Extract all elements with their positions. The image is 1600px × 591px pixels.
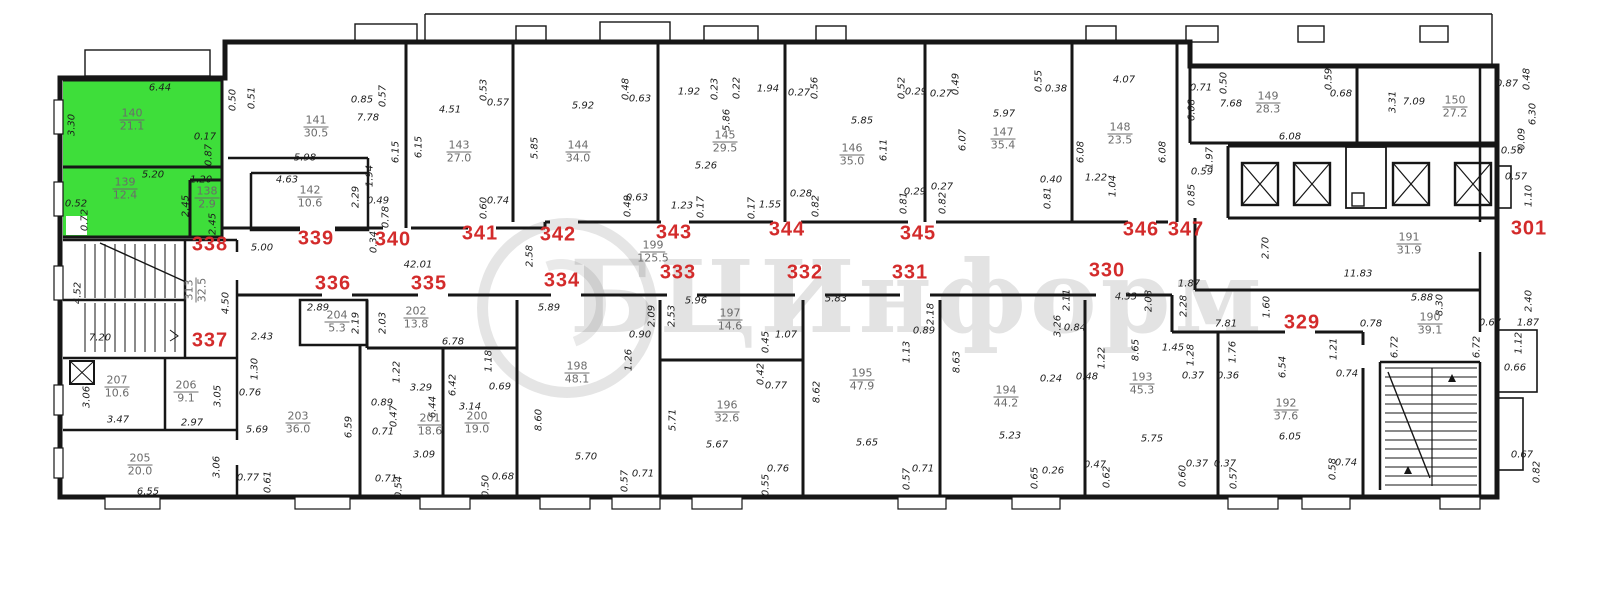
unit-number-329[interactable]: 329	[1284, 312, 1320, 335]
dimension-label: 0.61	[263, 471, 274, 493]
dimension-label: 0.22	[732, 77, 743, 99]
room-area: 48.1	[565, 374, 590, 386]
dimension-label: 2.70	[1261, 237, 1272, 259]
room-area: 5.3	[328, 323, 346, 335]
dimension-label: 1.60	[1262, 296, 1273, 318]
dimension-label: 0.85	[351, 95, 373, 106]
room-label-146: 14635.0	[840, 143, 865, 168]
room-area: 29.5	[713, 143, 738, 155]
dimension-label: 6.44	[149, 83, 171, 94]
dimension-label: 3.47	[107, 415, 129, 426]
dimension-label: 7.09	[1403, 97, 1425, 108]
room-area: 14.6	[718, 321, 743, 333]
dimension-label: 2.53	[667, 305, 678, 327]
unit-number-342[interactable]: 342	[540, 224, 576, 247]
unit-number-333[interactable]: 333	[660, 262, 696, 285]
room-label-202: 20213.8	[404, 306, 429, 331]
dimension-label: 0.62	[1102, 466, 1113, 488]
room-area: 45.3	[1130, 385, 1155, 397]
dimension-label: 7.78	[357, 113, 379, 124]
dimension-label: 0.78	[1360, 319, 1382, 330]
room-label-150: 15027.2	[1443, 95, 1468, 120]
dimension-label: 6.15	[414, 136, 425, 158]
dimension-label: 0.59	[1324, 68, 1335, 90]
dimension-label: 1.22	[392, 361, 403, 383]
dimension-label: 0.71	[912, 464, 934, 475]
dimension-label: 5.00	[251, 243, 273, 254]
unit-number-346[interactable]: 346	[1123, 219, 1159, 242]
room-label-201: 20118.6	[418, 413, 443, 438]
dimension-label: 5.65	[856, 438, 878, 449]
dimension-label: 6.07	[958, 129, 969, 151]
dimension-label: 1.87	[1517, 318, 1539, 329]
room-label-197: 19714.6	[718, 308, 743, 333]
room-area: 19.0	[465, 424, 490, 436]
room-label-206: 2069.1	[174, 380, 199, 405]
dimension-label: 0.65	[1030, 467, 1041, 489]
dimension-label: 7.81	[1215, 319, 1237, 330]
room-area: 27.0	[447, 153, 472, 165]
dimension-label: 3.09	[413, 450, 435, 461]
dimension-label: 6.78	[442, 337, 464, 348]
room-area: 2.9	[198, 199, 216, 211]
dimension-label: 0.90	[629, 330, 651, 341]
dimension-label: 3.31	[1388, 91, 1399, 113]
dimension-label: 8.62	[812, 381, 823, 403]
dimension-label: 1.45	[1162, 343, 1184, 354]
room-label-198: 19848.1	[565, 361, 590, 386]
dimension-label: 0.40	[1040, 175, 1062, 186]
dimension-label: 2.03	[378, 312, 389, 334]
unit-number-337[interactable]: 337	[192, 330, 228, 353]
dimension-label: 0.82	[1532, 461, 1543, 483]
room-label-191: 19131.9	[1397, 232, 1422, 257]
room-label-204: 2045.3	[325, 310, 350, 335]
dimension-label: 0.82	[811, 195, 822, 217]
room-area: 10.6	[105, 388, 130, 400]
room-area: 47.9	[850, 381, 875, 393]
dimension-label: 0.58	[1328, 458, 1339, 480]
dimension-label: 6.08	[1076, 141, 1087, 163]
dimension-label: 0.55	[761, 474, 772, 496]
dimension-label: 5.85	[530, 137, 541, 159]
dimension-label: 0.67	[1479, 318, 1501, 329]
room-label-145: 14529.5	[713, 130, 738, 155]
dimension-label: 0.77	[765, 381, 787, 392]
dimension-label: 0.38	[1045, 84, 1067, 95]
unit-number-301[interactable]: 301	[1511, 218, 1547, 241]
dimension-label: 2.18	[926, 303, 937, 325]
dimension-label: 3.05	[213, 385, 224, 407]
room-label-142: 14210.6	[298, 185, 323, 210]
dimension-label: 6.05	[1279, 432, 1301, 443]
dimension-label: 0.87	[1496, 79, 1518, 90]
room-area: 39.1	[1418, 325, 1443, 337]
dimension-label: 0.57	[620, 470, 631, 492]
dimension-label: 11.83	[1344, 269, 1373, 280]
dimension-label: 1.92	[678, 87, 700, 98]
unit-number-338[interactable]: 338	[192, 234, 228, 257]
dimension-label: 1.26	[624, 349, 635, 371]
unit-number-344[interactable]: 344	[769, 219, 805, 242]
unit-number-343[interactable]: 343	[656, 222, 692, 245]
dimension-label: 0.63	[629, 94, 651, 105]
dimension-label: 2.97	[181, 418, 203, 429]
dimension-label: 6.08	[1279, 132, 1301, 143]
dimension-label: 0.56	[1501, 146, 1523, 157]
labels-layer: 6.443.300.170.875.201.202.452.450.520.72…	[0, 0, 1600, 591]
dimension-label: 5.75	[1141, 434, 1163, 445]
dimension-label: 0.50	[228, 89, 239, 111]
dimension-label: 2.58	[525, 245, 536, 267]
dimension-label: 6.08	[1158, 141, 1169, 163]
dimension-label: 3.06	[82, 386, 93, 408]
dimension-label: 5.71	[668, 409, 679, 431]
dimension-label: 0.23	[710, 78, 721, 100]
room-area: 44.2	[994, 398, 1019, 410]
dimension-label: 0.69	[489, 382, 511, 393]
dimension-label: 0.50	[1219, 72, 1230, 94]
dimension-label: 0.71	[632, 469, 654, 480]
dimension-label: 3.30	[67, 114, 78, 136]
dimension-label: 0.55	[1034, 70, 1045, 92]
room-area: 37.6	[1274, 411, 1299, 423]
dimension-label: 1.07	[775, 330, 797, 341]
dimension-label: 0.37	[1182, 371, 1204, 382]
dimension-label: 0.29	[905, 87, 927, 98]
dimension-label: 0.56	[810, 77, 821, 99]
dimension-label: 6.42	[448, 374, 459, 396]
dimension-label: 6.54	[1278, 356, 1289, 378]
unit-number-339[interactable]: 339	[298, 228, 334, 251]
floor-plan: БЦИнформ 6.443.300.170.875.201.202.452.4…	[0, 0, 1600, 591]
unit-number-341[interactable]: 341	[462, 223, 498, 246]
dimension-label: 6.72	[1390, 336, 1401, 358]
dimension-label: 0.48	[1076, 372, 1098, 383]
dimension-label: 0.37	[1186, 459, 1208, 470]
room-label-193: 19345.3	[1130, 372, 1155, 397]
dimension-label: 1.13	[902, 341, 913, 363]
room-label-190: 19039.1	[1418, 312, 1443, 337]
unit-number-340[interactable]: 340	[375, 229, 411, 252]
room-label-148: 14823.5	[1108, 122, 1133, 147]
dimension-label: 0.57	[1505, 172, 1527, 183]
dimension-label: 5.67	[706, 440, 728, 451]
dimension-label: 5.92	[572, 101, 594, 112]
room-label-194: 19444.2	[994, 385, 1019, 410]
room-label-147: 14735.4	[991, 127, 1016, 152]
room-area: 18.6	[418, 426, 443, 438]
dimension-label: 0.57	[1229, 467, 1240, 489]
dimension-label: 0.72	[80, 209, 91, 231]
unit-number-331[interactable]: 331	[892, 262, 928, 285]
dimension-label: 0.17	[696, 196, 707, 218]
dimension-label: 5.85	[851, 116, 873, 127]
unit-number-335[interactable]: 335	[411, 273, 447, 296]
dimension-label: 5.69	[246, 425, 268, 436]
dimension-label: 5.96	[685, 296, 707, 307]
room-area: 35.0	[840, 156, 865, 168]
dimension-label: 0.47	[389, 405, 400, 427]
dimension-label: 0.71	[372, 427, 394, 438]
room-area: 31.9	[1397, 245, 1422, 257]
dimension-label: 1.87	[1178, 279, 1200, 290]
dimension-label: 2.11	[1062, 289, 1073, 311]
room-area: 34.0	[566, 153, 591, 165]
room-area: 9.1	[177, 393, 195, 405]
room-area: 21.1	[120, 121, 145, 133]
dimension-label: 0.59	[1191, 167, 1213, 178]
dimension-label: 0.74	[487, 196, 509, 207]
room-label-144: 14434.0	[566, 140, 591, 165]
room-label-195: 19547.9	[850, 368, 875, 393]
room-label-149: 14928.3	[1256, 91, 1281, 116]
dimension-label: 3.26	[1053, 315, 1064, 337]
dimension-label: 0.45	[761, 331, 772, 353]
room-area: 10.6	[298, 198, 323, 210]
dimension-label: 2.40	[1524, 290, 1535, 312]
dimension-label: 8.60	[534, 409, 545, 431]
room-area: 36.0	[286, 424, 311, 436]
dimension-label: 6.15	[391, 141, 402, 163]
dimension-label: 0.77	[237, 473, 259, 484]
room-label-138: 1382.9	[195, 186, 220, 211]
dimension-label: 0.82	[938, 192, 949, 214]
dimension-label: 2.28	[1179, 295, 1190, 317]
dimension-label: 0.74	[1336, 369, 1358, 380]
dimension-label: 6.08	[1187, 99, 1198, 121]
dimension-label: 6.55	[137, 487, 159, 498]
room-area: 23.5	[1108, 135, 1133, 147]
room-area: 32.5	[197, 278, 209, 303]
dimension-label: 5.89	[538, 303, 560, 314]
dimension-label: 0.84	[1064, 323, 1086, 334]
dimension-label: 1.94	[757, 84, 779, 95]
dimension-label: 4.33	[1115, 292, 1137, 303]
dimension-label: 4.50	[221, 292, 232, 314]
dimension-label: 0.76	[239, 388, 261, 399]
dimension-label: 0.87	[204, 144, 215, 166]
dimension-label: 0.67	[1511, 450, 1533, 461]
room-label-192: 19237.6	[1274, 398, 1299, 423]
dimension-label: 1.94	[365, 165, 376, 187]
dimension-label: 2.19	[351, 312, 362, 334]
dimension-label: 2.43	[251, 332, 273, 343]
dimension-label: 3.06	[212, 456, 223, 478]
room-area: 35.4	[991, 140, 1016, 152]
dimension-label: 1.23	[671, 201, 693, 212]
dimension-label: 0.78	[381, 206, 392, 228]
dimension-label: 5.26	[695, 161, 717, 172]
dimension-label: 0.27	[930, 89, 952, 100]
unit-number-330[interactable]: 330	[1089, 260, 1125, 283]
dimension-label: 5.98	[294, 153, 316, 164]
dimension-label: 8.65	[1131, 339, 1142, 361]
room-label-207: 20710.6	[105, 375, 130, 400]
room-label-196: 19632.6	[715, 400, 740, 425]
dimension-label: 2.45	[181, 195, 192, 217]
room-area: 28.3	[1256, 104, 1281, 116]
dimension-label: 0.68	[1330, 89, 1352, 100]
room-area: 32.6	[715, 413, 740, 425]
unit-number-334[interactable]: 334	[544, 270, 580, 293]
dimension-label: 6.30	[1528, 103, 1539, 125]
dimension-label: 0.49	[951, 73, 962, 95]
dimension-label: 1.22	[1097, 347, 1108, 369]
dimension-label: 0.27	[931, 182, 953, 193]
dimension-label: 0.49	[623, 195, 634, 217]
room-area: 30.5	[304, 128, 329, 140]
dimension-label: 0.17	[194, 132, 216, 143]
dimension-label: 2.09	[647, 305, 658, 327]
dimension-label: 0.85	[1187, 184, 1198, 206]
dimension-label: 1.76	[1228, 341, 1239, 363]
dimension-label: 0.50	[481, 475, 492, 497]
room-area: 12.4	[113, 190, 138, 202]
dimension-label: 1.04	[1108, 175, 1119, 197]
dimension-label: 0.36	[1217, 371, 1239, 382]
dimension-label: 1.55	[759, 200, 781, 211]
dimension-label: 6.72	[1472, 336, 1483, 358]
dimension-label: 0.28	[790, 189, 812, 200]
dimension-label: 1.10	[1524, 185, 1535, 207]
dimension-label: 0.57	[902, 468, 913, 490]
dimension-label: 6.59	[344, 416, 355, 438]
dimension-label: 4.63	[276, 175, 298, 186]
room-area: 13.8	[404, 319, 429, 331]
unit-number-347[interactable]: 347	[1168, 219, 1204, 242]
room-label-200: 20019.0	[465, 411, 490, 436]
dimension-label: 42.01	[404, 260, 433, 271]
dimension-label: 0.76	[767, 464, 789, 475]
dimension-label: 5.20	[142, 170, 164, 181]
dimension-label: 0.27	[788, 88, 810, 99]
dimension-label: 0.57	[487, 98, 509, 109]
dimension-label: 0.54	[394, 476, 405, 498]
dimension-label: 0.51	[247, 87, 258, 109]
dimension-label: 8.63	[952, 351, 963, 373]
dimension-label: 5.97	[993, 109, 1015, 120]
dimension-label: 2.29	[351, 186, 362, 208]
dimension-label: 0.66	[1504, 363, 1526, 374]
dimension-label: 0.17	[747, 197, 758, 219]
dimension-label: 2.45	[208, 213, 219, 235]
dimension-label: 0.68	[492, 472, 514, 483]
dimension-label: 1.21	[1329, 338, 1340, 360]
dimension-label: 7.20	[89, 333, 111, 344]
dimension-label: 5.23	[999, 431, 1021, 442]
dimension-label: 5.83	[825, 294, 847, 305]
dimension-label: 5.88	[1411, 293, 1433, 304]
room-label-313: 31332.5	[184, 278, 209, 303]
room-area: 20.0	[128, 466, 153, 478]
dimension-label: 0.52	[65, 199, 87, 210]
dimension-label: 5.70	[575, 452, 597, 463]
dimension-label: 1.30	[250, 358, 261, 380]
dimension-label: 6.11	[879, 139, 890, 161]
unit-number-345[interactable]: 345	[900, 223, 936, 246]
unit-number-336[interactable]: 336	[315, 273, 351, 296]
dimension-label: 0.89	[913, 326, 935, 337]
room-label-203: 20336.0	[286, 411, 311, 436]
room-area: 27.2	[1443, 108, 1468, 120]
unit-number-332[interactable]: 332	[787, 262, 823, 285]
dimension-label: 0.26	[1042, 466, 1064, 477]
dimension-label: 4.51	[439, 105, 461, 116]
dimension-label: 1.18	[484, 350, 495, 372]
dimension-label: 0.81	[1043, 187, 1054, 209]
dimension-label: 0.24	[1040, 374, 1062, 385]
dimension-label: 2.08	[1144, 290, 1155, 312]
dimension-label: 4.52	[73, 282, 84, 304]
dimension-label: 0.81	[899, 192, 910, 214]
room-label-139: 13912.4	[113, 177, 138, 202]
dimension-label: 7.68	[1220, 99, 1242, 110]
dimension-label: 0.49	[367, 196, 389, 207]
dimension-label: 0.71	[1190, 83, 1212, 94]
room-label-143: 14327.0	[447, 140, 472, 165]
dimension-label: 0.57	[378, 85, 389, 107]
dimension-label: 4.07	[1113, 75, 1135, 86]
dimension-label: 1.12	[1514, 332, 1525, 354]
dimension-label: 0.48	[1522, 68, 1533, 90]
room-label-205: 20520.0	[128, 453, 153, 478]
dimension-label: 3.29	[410, 383, 432, 394]
dimension-label: 0.60	[479, 197, 490, 219]
dimension-label: 1.22	[1085, 173, 1107, 184]
dimension-label: 1.28	[1186, 344, 1197, 366]
room-label-141: 14130.5	[304, 115, 329, 140]
room-label-140: 14021.1	[120, 108, 145, 133]
